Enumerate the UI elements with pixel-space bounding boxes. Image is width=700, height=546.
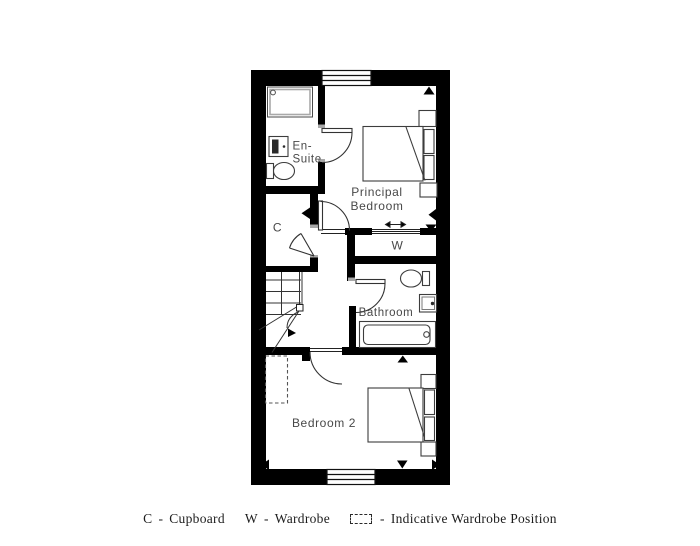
legend-item-wardrobe: W - Wardrobe (245, 511, 330, 527)
floorplan-drawing: En- Suite Principal Bedroom C W Bathroom… (0, 0, 700, 546)
legend-dash: - (264, 511, 269, 527)
label-ensuite-line2: Suite (293, 154, 322, 166)
label-principal-line1: Principal (351, 185, 402, 199)
legend-cupboard-label: Cupboard (169, 511, 225, 527)
bathroom-toilet (401, 270, 430, 287)
legend-wardrobe-symbol: W (245, 511, 258, 527)
legend: C - Cupboard W - Wardrobe - Indicative W… (0, 511, 700, 527)
legend-dash: - (380, 511, 385, 527)
bedroom2-bed (368, 375, 436, 457)
ensuite-door (322, 129, 352, 163)
legend-item-cupboard: C - Cupboard (143, 511, 225, 527)
legend-wardrobe-position-label: Indicative Wardrobe Position (391, 511, 557, 527)
bathroom-sink (420, 295, 437, 313)
top-window (322, 71, 371, 86)
bottom-window (327, 470, 375, 485)
bedroom2-door (310, 352, 342, 384)
legend-item-wardrobe-position: - Indicative Wardrobe Position (350, 511, 557, 527)
cupboard-door (290, 234, 315, 257)
bath-tub (360, 322, 436, 348)
label-bedroom2: Bedroom 2 (292, 416, 356, 430)
principal-bedroom-door (319, 201, 350, 231)
label-principal-line2: Bedroom (351, 199, 404, 213)
legend-wardrobe-label: Wardrobe (275, 511, 330, 527)
dashed-box-icon (350, 514, 372, 524)
ensuite-sink (269, 137, 288, 157)
wardrobe-sliding-door (372, 228, 420, 235)
label-ensuite-line1: En- (293, 141, 313, 153)
principal-door-threshold (321, 228, 345, 235)
indicative-wardrobe-position (266, 356, 288, 403)
bedroom2-door-threshold (310, 347, 342, 355)
stairs-direction-arrowhead (288, 329, 296, 338)
legend-cupboard-symbol: C (143, 511, 152, 527)
label-bathroom: Bathroom (359, 307, 414, 319)
wardrobe-slide-arrow (386, 222, 406, 227)
floorplan-page: En- Suite Principal Bedroom C W Bathroom… (0, 0, 700, 546)
label-cupboard: C (273, 221, 282, 235)
shower (268, 87, 313, 117)
legend-dash: - (158, 511, 163, 527)
label-wardrobe: W (392, 239, 404, 253)
ensuite-toilet (267, 163, 295, 180)
